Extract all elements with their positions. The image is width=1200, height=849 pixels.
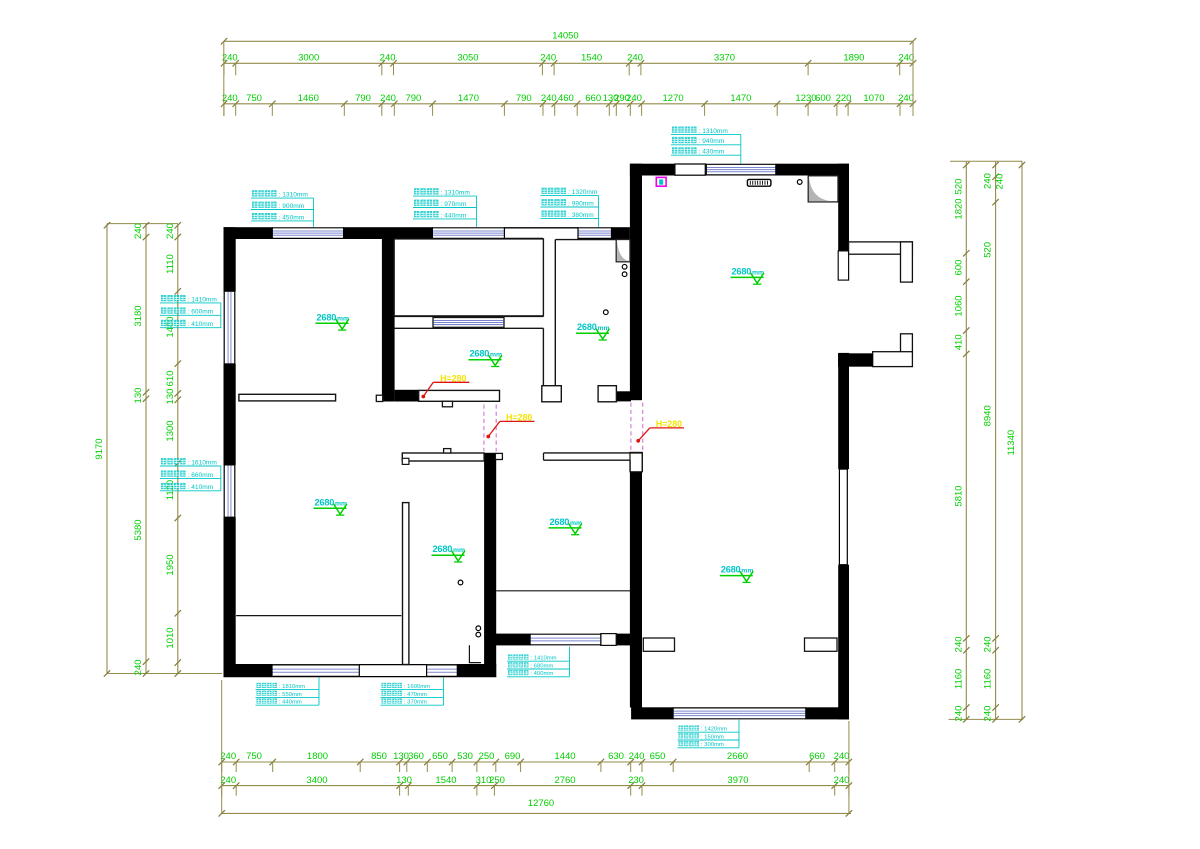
svg-text:: 1310mm: : 1310mm (441, 190, 471, 197)
svg-text:: 970mm: : 970mm (441, 201, 467, 208)
svg-text:240: 240 (983, 706, 994, 722)
svg-text:360: 360 (408, 751, 424, 762)
svg-text:9170: 9170 (94, 438, 105, 459)
svg-text:750: 750 (246, 93, 262, 104)
svg-text:8940: 8940 (983, 405, 994, 426)
svg-text:: 600mm: : 600mm (188, 309, 214, 316)
svg-text:660: 660 (585, 93, 601, 104)
svg-text:1890: 1890 (843, 52, 864, 63)
svg-text:: 370mm: : 370mm (404, 700, 427, 706)
svg-text:230: 230 (628, 775, 644, 786)
svg-text:240: 240 (898, 52, 914, 63)
svg-text:: 940mm: : 940mm (699, 138, 725, 145)
svg-text:240: 240 (541, 93, 557, 104)
svg-text:2680: 2680 (721, 565, 741, 575)
svg-text:1440: 1440 (554, 751, 575, 762)
svg-text:1120: 1120 (165, 480, 176, 500)
svg-text:5380: 5380 (133, 519, 144, 540)
svg-text:610: 610 (165, 371, 176, 387)
svg-text:660: 660 (809, 751, 825, 762)
svg-text:: 550mm: : 550mm (279, 692, 302, 698)
svg-text:: 440mm: : 440mm (279, 700, 302, 706)
svg-text:: 380mm: : 380mm (568, 212, 594, 219)
svg-text:1480: 1480 (165, 316, 176, 337)
svg-text:130: 130 (396, 775, 412, 786)
svg-text:H=280: H=280 (656, 419, 682, 429)
svg-text:: 300mm: : 300mm (701, 742, 724, 748)
svg-text:240: 240 (133, 223, 144, 239)
svg-text:1540: 1540 (435, 775, 456, 786)
svg-text:2760: 2760 (554, 775, 575, 786)
svg-text:220: 220 (836, 93, 852, 104)
svg-text:650: 650 (432, 751, 448, 762)
svg-text:250: 250 (489, 775, 505, 786)
svg-text:14050: 14050 (552, 30, 578, 41)
svg-text:600: 600 (953, 260, 964, 276)
svg-text:: 450mm: : 450mm (279, 214, 305, 221)
svg-text:: 1320mm: : 1320mm (568, 189, 598, 196)
svg-text:3000: 3000 (298, 52, 319, 63)
svg-text:: 660mm: : 660mm (188, 472, 214, 479)
svg-text:12760: 12760 (528, 798, 554, 809)
svg-text:850: 850 (371, 751, 387, 762)
svg-text:1950: 1950 (165, 554, 176, 575)
svg-text:1800: 1800 (307, 751, 328, 762)
svg-text:600: 600 (815, 93, 831, 104)
svg-text:250: 250 (479, 751, 495, 762)
svg-text:240: 240 (629, 751, 645, 762)
svg-text:240: 240 (626, 93, 642, 104)
svg-text:1470: 1470 (730, 93, 751, 104)
svg-text:: 470mm: : 470mm (404, 692, 427, 698)
svg-text:1820: 1820 (953, 198, 964, 219)
svg-text:2680: 2680 (317, 312, 337, 322)
svg-text:790: 790 (405, 93, 421, 104)
svg-text:410: 410 (953, 334, 964, 350)
svg-text:: 440mm: : 440mm (441, 212, 467, 219)
svg-text:240: 240 (898, 93, 914, 104)
svg-text:2660: 2660 (727, 751, 748, 762)
svg-text:240: 240 (983, 173, 994, 189)
svg-text:2680: 2680 (732, 266, 752, 276)
svg-text:1010: 1010 (165, 627, 176, 648)
svg-text:240: 240 (995, 174, 1006, 190)
svg-text:1160: 1160 (983, 669, 994, 689)
svg-text:520: 520 (953, 179, 964, 195)
svg-text:790: 790 (355, 93, 371, 104)
svg-text:: 410mm: : 410mm (188, 321, 214, 328)
svg-text:3970: 3970 (727, 775, 748, 786)
svg-text:: 1310mm: : 1310mm (699, 128, 729, 135)
svg-text:1470: 1470 (458, 93, 479, 104)
svg-text:750: 750 (246, 751, 262, 762)
svg-text:2680: 2680 (433, 544, 453, 554)
svg-text:630: 630 (608, 751, 624, 762)
svg-text:240: 240 (953, 636, 964, 652)
svg-text:: 1600mm: : 1600mm (404, 684, 430, 690)
svg-text:240: 240 (627, 52, 643, 63)
svg-text:1300: 1300 (165, 420, 176, 441)
svg-text:3370: 3370 (714, 52, 735, 63)
svg-text:240: 240 (380, 93, 396, 104)
svg-text:1270: 1270 (663, 93, 684, 104)
svg-text:130: 130 (165, 389, 176, 405)
svg-text:3050: 3050 (457, 52, 478, 63)
svg-text:240: 240 (220, 775, 236, 786)
svg-text:1540: 1540 (581, 52, 602, 63)
svg-text:: 150mm: : 150mm (701, 734, 724, 740)
svg-text:3180: 3180 (133, 305, 144, 326)
svg-text:3400: 3400 (306, 775, 327, 786)
svg-text:H=280: H=280 (506, 412, 532, 422)
svg-text:: 990mm: : 990mm (568, 200, 594, 207)
svg-text:240: 240 (834, 775, 850, 786)
svg-text:: 1810mm: : 1810mm (279, 684, 305, 690)
svg-text:1060: 1060 (953, 295, 964, 316)
svg-text:240: 240 (953, 706, 964, 722)
svg-text:: 1410mm: : 1410mm (188, 296, 218, 303)
svg-text:790: 790 (516, 93, 532, 104)
svg-text:1230: 1230 (795, 93, 816, 104)
svg-text:2680: 2680 (315, 497, 335, 507)
svg-text:650: 650 (650, 751, 666, 762)
svg-text:240: 240 (380, 52, 396, 63)
svg-text:240: 240 (983, 636, 994, 652)
svg-text:: 1610mm: : 1610mm (188, 459, 218, 466)
svg-text:: 430mm: : 430mm (699, 149, 725, 156)
svg-text:11340: 11340 (1006, 430, 1017, 456)
svg-text:520: 520 (983, 242, 994, 258)
svg-text:240: 240 (220, 751, 236, 762)
svg-text:240: 240 (165, 223, 176, 239)
svg-text:: 1410mm: : 1410mm (530, 656, 556, 662)
svg-text:690: 690 (505, 751, 521, 762)
svg-text:: 410mm: : 410mm (188, 484, 214, 491)
svg-text:240: 240 (133, 659, 144, 675)
svg-text:: 900mm: : 900mm (279, 203, 305, 210)
svg-text:130: 130 (133, 388, 144, 404)
svg-text:1070: 1070 (863, 93, 884, 104)
svg-text:530: 530 (457, 751, 473, 762)
svg-text:: 1310mm: : 1310mm (279, 192, 309, 199)
svg-text:: 400mm: : 400mm (530, 671, 553, 677)
svg-text:1460: 1460 (298, 93, 319, 104)
svg-text:1160: 1160 (953, 669, 964, 689)
svg-text:1110: 1110 (165, 254, 176, 274)
svg-text:5810: 5810 (953, 485, 964, 506)
svg-text:: 1420mm: : 1420mm (701, 727, 727, 733)
svg-text:240: 240 (834, 751, 850, 762)
svg-text:2680: 2680 (550, 517, 570, 527)
svg-text:460: 460 (558, 93, 574, 104)
svg-text:2680: 2680 (470, 349, 490, 359)
svg-text:130: 130 (393, 751, 409, 762)
svg-text:H=280: H=280 (440, 373, 466, 383)
svg-text:240: 240 (540, 52, 556, 63)
svg-text:: 680mm: : 680mm (530, 663, 553, 669)
svg-text:2680: 2680 (577, 322, 597, 332)
